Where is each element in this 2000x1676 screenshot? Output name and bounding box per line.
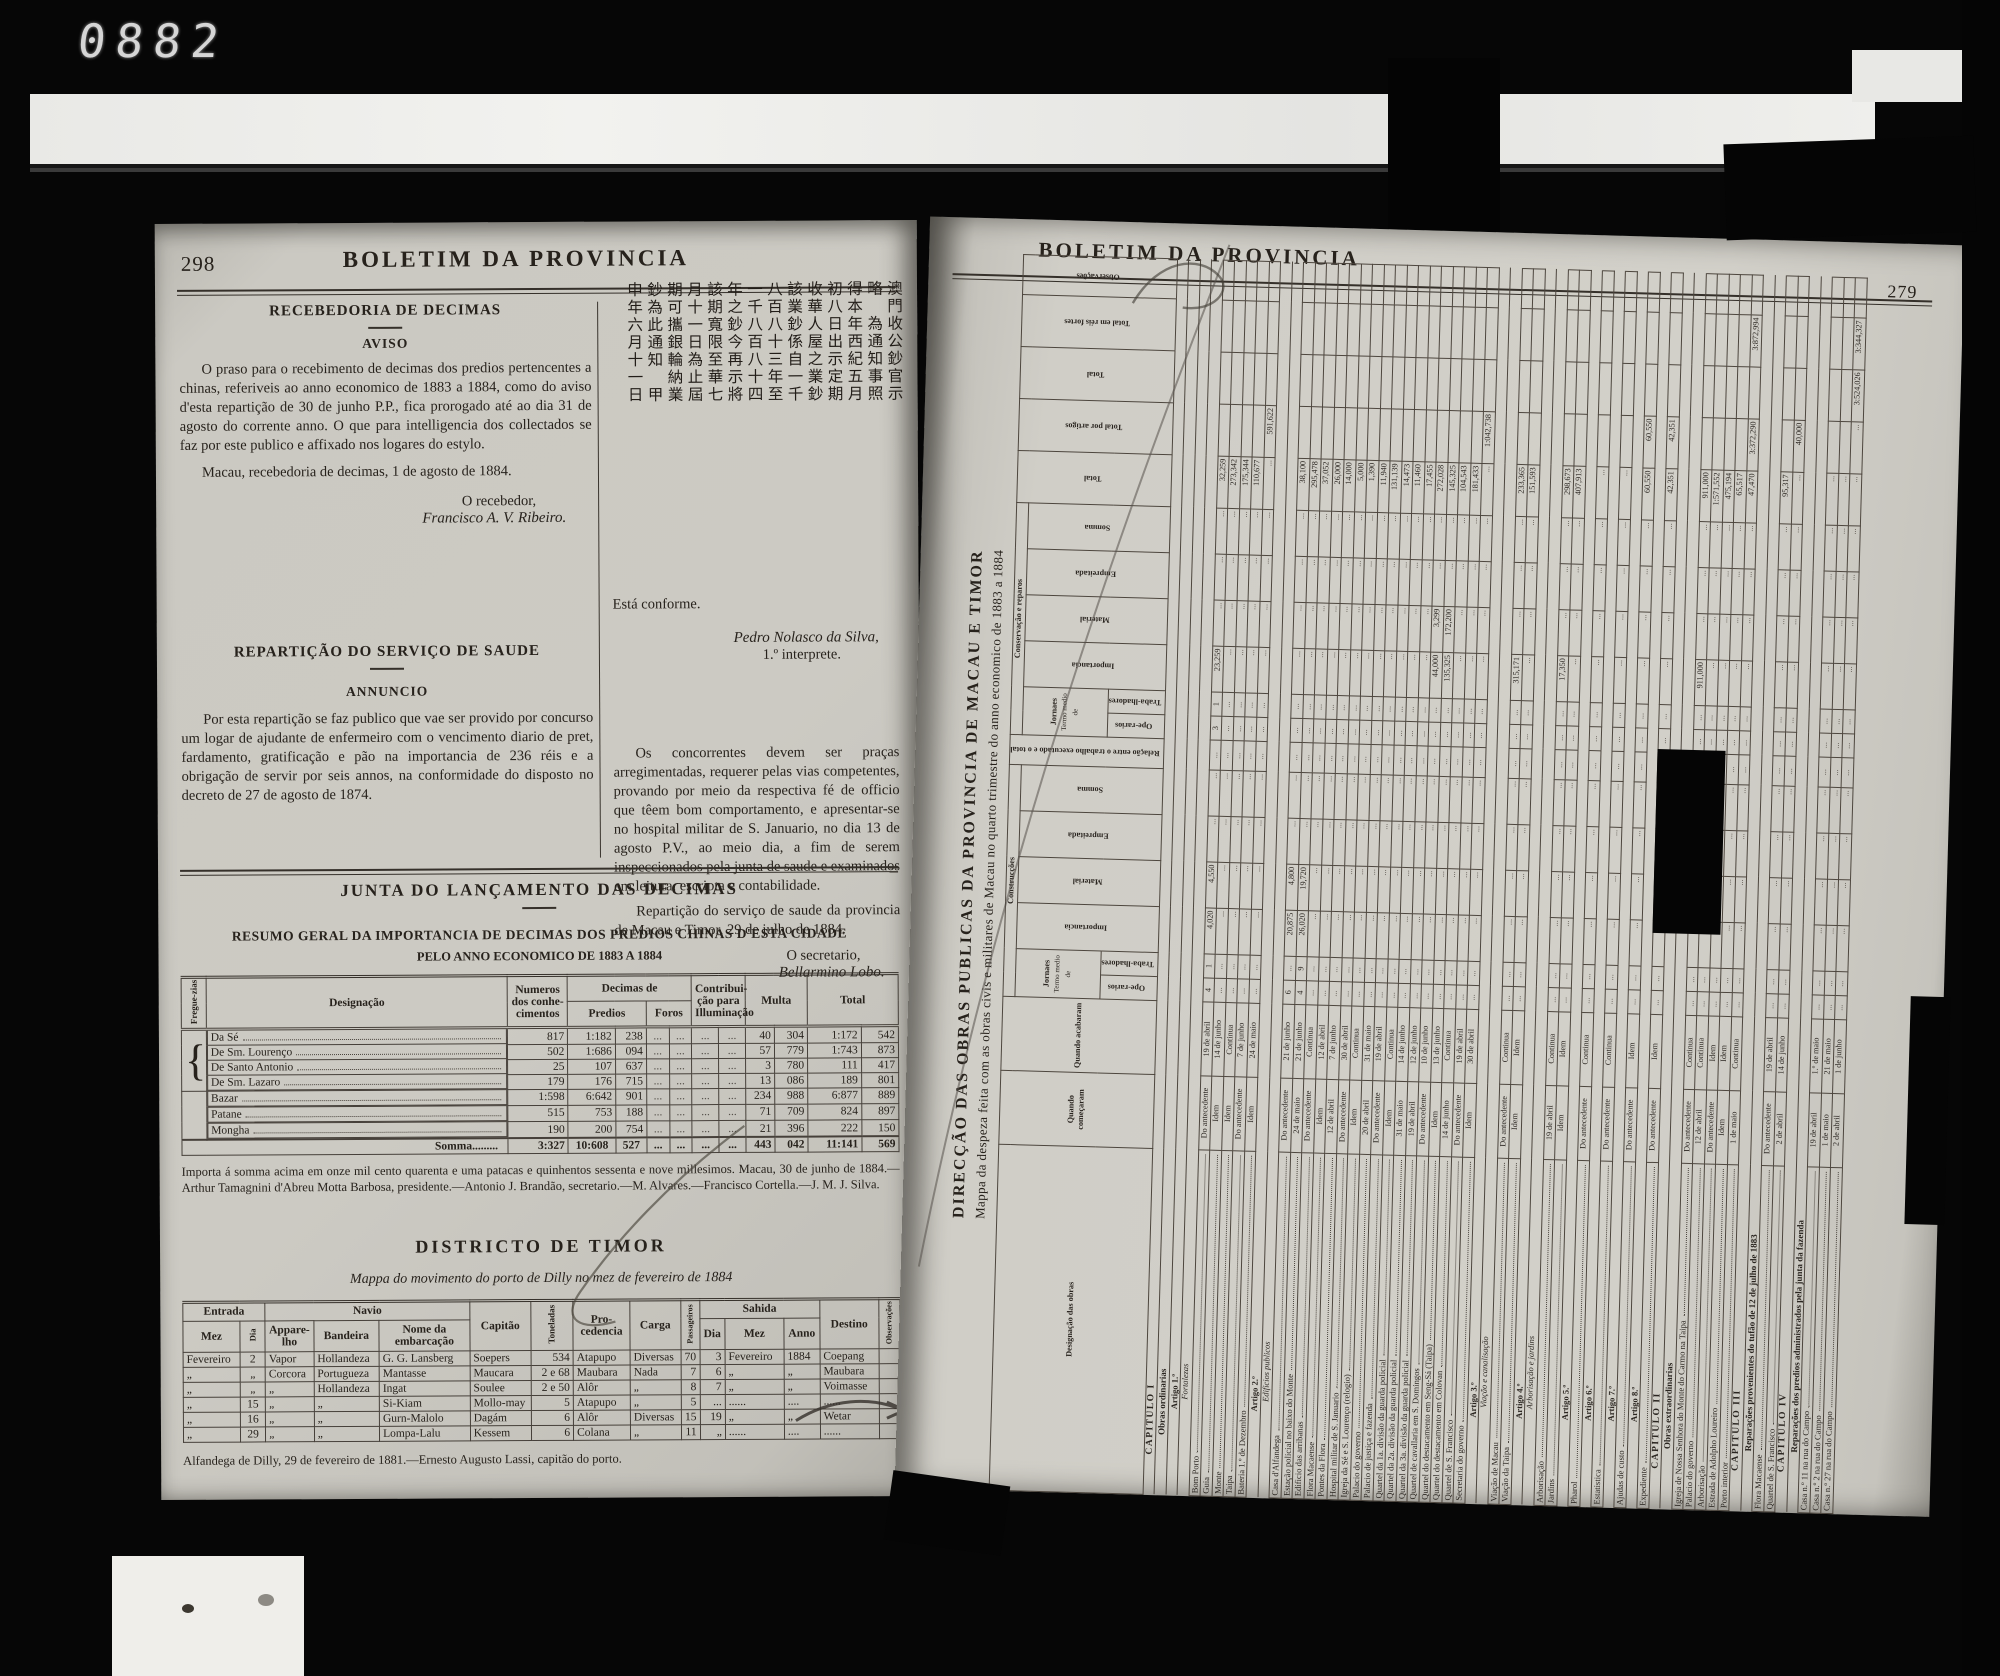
- aviso-dateline: Macau, recebedoria de decimas, 1 de agos…: [180, 462, 592, 483]
- timor-cell: „: [266, 1412, 315, 1427]
- obras-cell: ...: [1234, 693, 1246, 717]
- obras-cell: ...: [1428, 746, 1440, 776]
- obras-cell: ...: [1772, 756, 1784, 786]
- obras-cell: ...: [1301, 743, 1313, 773]
- obras-cell: ...: [1410, 984, 1422, 1008]
- decimas-cell: 901: [616, 1089, 647, 1105]
- obras-cell: ...: [1705, 706, 1717, 730]
- decimas-cell: ...: [719, 1043, 746, 1058]
- timor-cell: „: [784, 1379, 820, 1394]
- rotated-table-wrapper: DIRECÇÃO DAS OBRAS PUBLICAS DA PROVINCIA…: [943, 278, 1881, 1515]
- col-designacao-obras: Designação das obras: [989, 1144, 1152, 1494]
- obras-cell: ...: [1566, 750, 1578, 780]
- timor-cell: „: [183, 1382, 240, 1397]
- obras-cell: ...: [1307, 957, 1319, 981]
- obras-cell: ...: [1318, 957, 1330, 981]
- obras-cell: ...: [1842, 734, 1854, 758]
- obras-cell: ...: [1341, 982, 1353, 1006]
- obras-cell: ...: [1290, 742, 1302, 772]
- col-trabalhadores-1: Traba-lhadores: [1101, 959, 1154, 969]
- decimas-designacao: De Sm. Lourenço: [207, 1044, 508, 1061]
- timor-cell: „: [265, 1382, 314, 1397]
- obras-cell: ...: [1382, 745, 1394, 775]
- obras-cell: ...: [1721, 968, 1733, 992]
- decimas-cell: ...: [647, 1121, 670, 1138]
- obras-cell: ...: [1836, 926, 1849, 972]
- dot-leader: [296, 1054, 501, 1056]
- obras-cell: ...: [1245, 717, 1257, 741]
- timor-cell: ......: [820, 1424, 879, 1439]
- timor-cell: Maubara: [820, 1364, 879, 1379]
- annuncio-heading: ANNUNCIO: [181, 683, 593, 701]
- timor-cell: Mollo-may: [470, 1396, 531, 1411]
- obras-cell: ...: [1245, 693, 1257, 717]
- obras-cell: ...: [1566, 726, 1578, 750]
- obras-cell: ...: [1823, 995, 1835, 1019]
- obras-cell: ...: [1694, 705, 1706, 729]
- timor-cell: „: [314, 1426, 379, 1441]
- col-procedencia: Pro-cedencia: [573, 1300, 630, 1350]
- obras-cell: ...: [1686, 991, 1698, 1015]
- decimas-cell: ...: [692, 1088, 719, 1104]
- obras-cell: ...: [1440, 722, 1452, 746]
- rule: [368, 327, 402, 329]
- obras-cell: ...: [1456, 961, 1468, 985]
- next-frame-sliver: [112, 1556, 304, 1676]
- frame-wedge: [884, 1470, 1011, 1556]
- col-importancia-2: Importancia: [1072, 661, 1115, 671]
- decimas-cell: 189: [808, 1073, 862, 1088]
- obras-cell: ...: [1463, 723, 1475, 747]
- col-empreitada-1: Empreitada: [1068, 831, 1109, 841]
- col-designacao: Designação: [206, 976, 508, 1030]
- obras-cell: ...: [1445, 961, 1457, 985]
- obras-cell: ...: [1508, 748, 1520, 778]
- obras-cell: ...: [1249, 979, 1261, 1003]
- obras-cell: ...: [1433, 984, 1445, 1008]
- timor-cell: 5: [681, 1395, 700, 1410]
- timor-cell: „: [725, 1409, 784, 1424]
- decimas-cell: 3: [746, 1058, 775, 1073]
- decimas-cell: ...: [719, 1058, 746, 1073]
- col-total: Total: [1084, 474, 1102, 483]
- col-entrada: Entrada: [183, 1302, 265, 1321]
- decimas-cell: 6:642: [568, 1089, 616, 1105]
- obras-cell: ...: [1233, 717, 1245, 741]
- col-trabalhadores-2: Traba-lhadores: [1108, 697, 1161, 707]
- obras-cell: ...: [1399, 959, 1411, 983]
- decimas-cell: ...: [647, 1089, 670, 1105]
- decimas-cell: 107: [568, 1059, 616, 1074]
- obras-cell: ...: [1306, 981, 1318, 1005]
- col-multa: Multa: [745, 974, 807, 1027]
- timor-cell: G. G. Lansberg: [379, 1351, 470, 1366]
- obras-cell: ...: [1830, 757, 1842, 787]
- freguezias-brace: {: [181, 1030, 206, 1092]
- obras-cell: ...: [1422, 960, 1434, 984]
- col-toneladas: Toneladas: [546, 1305, 558, 1344]
- timor-cell: Maucara: [470, 1366, 531, 1381]
- obras-cell: ...: [1428, 722, 1440, 746]
- timor-cell: Colana: [574, 1425, 631, 1440]
- timor-cell: „: [183, 1367, 240, 1382]
- obras-cell: 6: [1283, 980, 1295, 1004]
- decimas-cell: 57: [745, 1043, 774, 1058]
- decimas-table: Fregue-zias Designação Numeros dos conhe…: [181, 972, 900, 1156]
- obras-cell: ...: [1318, 981, 1330, 1005]
- obras-cell: ...: [1364, 958, 1376, 982]
- col-decimas: Decimas de: [567, 975, 691, 1002]
- film-edge-blotch: [1904, 996, 1950, 1225]
- decimas-cell: 40: [745, 1027, 774, 1044]
- col-dia: Dia: [247, 1328, 259, 1341]
- obras-cell: 4: [1203, 978, 1215, 1002]
- obras-cell: ...: [1313, 719, 1325, 743]
- col-somma-1: Somma: [1077, 785, 1103, 795]
- timor-cell: Hollandeza: [314, 1381, 379, 1396]
- obras-cell: ...: [1394, 721, 1406, 745]
- timor-cell: Voimasse: [820, 1379, 879, 1394]
- decimas-cell: ...: [692, 1027, 719, 1044]
- timor-cell: „: [240, 1382, 265, 1397]
- obras-cell: ...: [1226, 955, 1238, 979]
- obras-cell: ...: [1341, 958, 1353, 982]
- timor-cell: 6: [700, 1365, 725, 1380]
- obras-cell: ...: [1375, 983, 1387, 1007]
- decimas-cell: ...: [692, 1043, 719, 1058]
- timor-cell: Soulee: [470, 1381, 531, 1396]
- decimas-cell: ...: [692, 1073, 719, 1088]
- decimas-cell: 238: [615, 1027, 646, 1044]
- timor-cell: Atapupo: [573, 1350, 630, 1365]
- decimas-cell: 1:182: [568, 1027, 616, 1044]
- timor-cell: „: [183, 1412, 240, 1427]
- obras-cell: ...: [1509, 724, 1521, 748]
- obras-cell: ...: [1520, 725, 1532, 749]
- obras-cell: ...: [1387, 959, 1399, 983]
- obras-cell: ...: [1556, 702, 1568, 726]
- decimas-designacao: Bazar: [207, 1089, 508, 1107]
- decimas-cell: 754: [616, 1121, 647, 1138]
- decimas-cell: ...: [692, 1104, 719, 1120]
- obras-cell: ...: [1697, 992, 1709, 1016]
- obras-cell: ...: [1636, 704, 1648, 728]
- somma-cell: 10:608: [568, 1138, 616, 1154]
- timor-cell: 19: [700, 1410, 725, 1425]
- decimas-designacao: Patane: [207, 1105, 508, 1123]
- recebedor-name: Francisco A. V. Ribeiro.: [180, 510, 592, 529]
- termo-medio-1: Termo medio de: [1053, 955, 1072, 993]
- timor-cell: 7: [681, 1365, 700, 1380]
- obras-cell: ...: [1583, 964, 1595, 988]
- obras-cell: ...: [1359, 744, 1371, 774]
- obras-cell: ...: [1376, 959, 1388, 983]
- obras-cell: ...: [1215, 954, 1227, 978]
- junta-title: JUNTA DO LANÇAMENTO DAS DECIMAS: [180, 878, 898, 902]
- timor-cell: „: [183, 1397, 240, 1412]
- timor-cell: Hollandeza: [314, 1351, 379, 1366]
- timor-cell: 15: [681, 1410, 700, 1425]
- obras-cell: ...: [1844, 664, 1857, 710]
- timor-cell: „: [725, 1379, 784, 1394]
- obras-cell: ...: [1209, 740, 1221, 770]
- decimas-cell: 086: [775, 1073, 808, 1088]
- obras-cell: ...: [1468, 961, 1480, 985]
- concorrentes-text: Os concorrentes devem ser praças arregim…: [613, 743, 900, 896]
- col-nome: Nome da embarcação: [379, 1320, 470, 1352]
- somma-cell: 3:327: [508, 1138, 568, 1154]
- obras-cell: ...: [1502, 962, 1514, 986]
- col-material-1: Material: [1072, 877, 1102, 887]
- obras-cell: ...: [1383, 697, 1395, 721]
- obras-cell: ...: [1651, 990, 1663, 1014]
- timor-cell: ...: [700, 1395, 725, 1410]
- obras-cell: ...: [1464, 699, 1476, 723]
- obras-cell: ...: [1387, 983, 1399, 1007]
- col-acabaram: Quando acabaram: [1001, 996, 1157, 1074]
- obras-cell: ...: [1820, 709, 1832, 733]
- obras-cell: ...: [1313, 743, 1325, 773]
- obras-cell: ...: [1739, 707, 1751, 731]
- rule: [522, 907, 556, 909]
- obras-cell: ...: [1371, 720, 1383, 744]
- obras-cell: 1: [1203, 954, 1215, 978]
- col-operarios-2: Ope-rarios: [1115, 721, 1153, 731]
- interpreter-name: Pedro Nolasco da Silva,: [613, 629, 899, 647]
- obras-cell: ...: [1249, 955, 1261, 979]
- obras-cell: ...: [1589, 751, 1601, 781]
- timor-cell: Vapor: [265, 1352, 314, 1367]
- brace-glyph: {: [185, 1036, 206, 1085]
- decimas-cell: 200: [568, 1121, 616, 1138]
- decimas-cell: ...: [646, 1027, 669, 1044]
- decimas-cell: 188: [616, 1105, 647, 1121]
- timor-cell: 2 e 68: [531, 1365, 573, 1380]
- decimas-cell: 396: [775, 1120, 808, 1137]
- timor-cell: ....: [784, 1424, 820, 1439]
- timor-cell: „: [725, 1364, 784, 1379]
- obras-cell: ...: [1785, 708, 1797, 732]
- timor-cell: Nada: [630, 1365, 681, 1380]
- timor-row: „29„„Lompa-LaluKessem6Colana„11„........…: [183, 1424, 900, 1443]
- obras-cell: ...: [1773, 732, 1785, 756]
- decimas-cell: 1:598: [508, 1089, 568, 1105]
- microfilm-frame: { "film": { "counter": "0882" }, "left_p…: [0, 0, 2000, 1676]
- somma-cell: ...: [647, 1138, 670, 1154]
- decimas-footnote: Importa á somma acima em onze mil cento …: [182, 1160, 900, 1196]
- col-comecaram: Quando começaram: [999, 1070, 1155, 1148]
- decimas-cell: 715: [615, 1074, 646, 1089]
- obras-cell: ...: [1336, 743, 1348, 773]
- conforme-line: Está conforme.: [613, 594, 899, 614]
- obras-cell: 3:524,026: [1852, 370, 1865, 422]
- obras-cell: ...: [1290, 718, 1302, 742]
- col-dia-sahida: Dia: [699, 1318, 724, 1350]
- resumo-subtitle1: RESUMO GERAL DA IMPORTANCIA DE DECIMAS D…: [180, 925, 898, 945]
- recebedoria-title: RECEBEDORIA DE DECIMAS: [179, 302, 591, 321]
- decimas-cell: 176: [568, 1074, 616, 1089]
- decimas-cell: ...: [646, 1074, 669, 1089]
- decimas-cell: 873: [861, 1042, 898, 1057]
- decimas-cell: 179: [508, 1074, 568, 1089]
- obras-cell: ...: [1382, 721, 1394, 745]
- decimas-cell: 542: [861, 1026, 898, 1043]
- col-relacao: Relação entre o trabalho executado e o t…: [1010, 745, 1160, 758]
- obras-cell: ...: [1831, 733, 1843, 757]
- decimas-cell: 897: [861, 1103, 898, 1119]
- dot-leader: [243, 1039, 502, 1041]
- obras-cell: ...: [1612, 727, 1624, 751]
- col-navio: Navio: [265, 1301, 470, 1321]
- obras-cell: ...: [1238, 955, 1250, 979]
- obras-cell: ...: [1548, 987, 1560, 1011]
- obras-cell: ...: [1222, 692, 1234, 716]
- obras-cell: 1 de junho: [1833, 1020, 1847, 1094]
- timor-cell: „: [314, 1411, 379, 1426]
- timor-cell: 1884: [784, 1349, 820, 1364]
- obras-cell: ...: [1456, 985, 1468, 1009]
- film-notch: [1388, 58, 1500, 234]
- obras-cell: ...: [1232, 741, 1244, 771]
- termo-medio-2: Termo medio de: [1060, 693, 1079, 731]
- decimas-cell: ...: [669, 1044, 692, 1059]
- col-mez: Mez: [183, 1321, 240, 1353]
- obras-cell: 3:344,327: [1853, 318, 1866, 370]
- col-observacoes: Observações: [883, 1301, 895, 1344]
- obras-cell: ...: [1590, 703, 1602, 727]
- obras-cell: ...: [1774, 708, 1786, 732]
- frame-corner-blotch: [1723, 136, 1976, 241]
- obras-cell: ...: [1824, 971, 1836, 995]
- col-somma-2: Somma: [1084, 523, 1110, 533]
- dot-leader: [254, 1132, 502, 1134]
- obras-cell: ...: [1237, 979, 1249, 1003]
- timor-cell: „: [700, 1425, 725, 1440]
- obras-cell: ...: [1405, 721, 1417, 745]
- obras-cell: ...: [1284, 956, 1296, 980]
- obras-cell: ...: [1847, 526, 1860, 572]
- obras-cell: ...: [1612, 751, 1624, 781]
- obras-cell: ...: [1406, 697, 1418, 721]
- timor-cell: 6: [531, 1425, 573, 1440]
- obras-cell: ...: [1291, 694, 1303, 718]
- timor-cell: 2 e 50: [531, 1380, 573, 1395]
- freguezias-empty: [182, 1091, 207, 1140]
- col-capitao: Capitão: [470, 1301, 531, 1351]
- decimas-cell: ...: [669, 1121, 692, 1138]
- right-column: 澳門收公鈔官示 略 為通知事照 得本年西紀五月 初八日出示定期 收華人屋之業鈔 …: [611, 280, 901, 982]
- frame-edge-right: [1962, 0, 2000, 1676]
- group-jornaes-2: JornaesTermo medio de: [1022, 687, 1109, 737]
- aviso-heading: AVISO: [179, 335, 591, 353]
- timor-cell: „: [183, 1427, 240, 1442]
- obras-cell: ...: [1739, 731, 1751, 755]
- film-frame-counter: 0882: [75, 14, 231, 68]
- obras-cell: ...: [1839, 834, 1852, 880]
- decimas-cell: 780: [774, 1058, 807, 1073]
- scrap-speck: [258, 1594, 274, 1606]
- obras-cell: ...: [1767, 970, 1779, 994]
- col-empreitada-2: Empreitada: [1075, 569, 1116, 579]
- timor-cell: Fevereiro: [183, 1352, 240, 1367]
- obras-cell: ...: [1303, 695, 1315, 719]
- timor-cell: Kessem: [470, 1426, 531, 1441]
- decimas-cell: 709: [775, 1104, 808, 1120]
- decimas-cell: ...: [692, 1058, 719, 1073]
- col-carga: Carga: [630, 1300, 681, 1350]
- timor-footnote: Alfandega de Dilly, 29 de fevereiro de 1…: [183, 1449, 901, 1469]
- obras-cell: ...: [1462, 747, 1474, 777]
- timor-cell: 6: [531, 1410, 573, 1425]
- decimas-cell: 824: [808, 1104, 862, 1120]
- obras-cell: ...: [1843, 710, 1855, 734]
- obras-cell: ...: [1819, 733, 1831, 757]
- obras-cell: ...: [1582, 988, 1594, 1012]
- timor-cell: ......: [725, 1424, 784, 1439]
- timor-subtitle: Mappa do movimento do porto de Dilly no …: [182, 1269, 900, 1289]
- obras-cell: ...: [1395, 697, 1407, 721]
- obras-cell: ...: [1613, 703, 1625, 727]
- obras-cell: ...: [1502, 986, 1514, 1010]
- obras-cell: ...: [1846, 572, 1859, 618]
- somma-cell: ...: [719, 1137, 746, 1153]
- obras-cell: ...: [1256, 717, 1268, 741]
- decimas-cell: ...: [719, 1104, 746, 1120]
- obras-cell: ...: [1521, 701, 1533, 725]
- obras-cell: ...: [1738, 755, 1750, 785]
- obras-cell: ...: [1554, 750, 1566, 780]
- obras-cell: ...: [1325, 719, 1337, 743]
- timor-cell: „: [266, 1427, 315, 1442]
- obras-cell: ...: [1628, 990, 1640, 1014]
- decimas-cell: 222: [808, 1120, 862, 1137]
- obras-cell: ...: [1370, 744, 1382, 774]
- timor-cell: Gurn-Malolo: [379, 1411, 470, 1426]
- timor-cell: „: [630, 1425, 681, 1440]
- decimas-cell: 801: [861, 1072, 898, 1087]
- obras-cell: ...: [1474, 747, 1486, 777]
- timor-cell: 2: [240, 1352, 265, 1367]
- obras-cell: ...: [1732, 969, 1744, 993]
- somma-cell: 569: [862, 1136, 899, 1152]
- timor-cell: Atapupo: [573, 1395, 630, 1410]
- obras-cell: ...: [1353, 958, 1365, 982]
- film-edge-strip: [30, 94, 1875, 164]
- rule: [370, 668, 404, 670]
- annuncio-text: Por esta repartição se faz publico que v…: [181, 709, 593, 806]
- timor-cell: „: [784, 1409, 820, 1424]
- saude-title: REPARTIÇÃO DO SERVIÇO DE SAUDE: [181, 643, 593, 662]
- decimas-cell: 889: [861, 1087, 898, 1103]
- timor-cell: 7: [700, 1380, 725, 1395]
- obras-cell: ...: [1337, 696, 1349, 720]
- obras-cell: ...: [1514, 963, 1526, 987]
- somma-cell: 443: [746, 1137, 775, 1153]
- timor-cell: Diversas: [630, 1350, 681, 1365]
- obras-cell: ...: [1330, 957, 1342, 981]
- obras-cell: ...: [1841, 758, 1853, 788]
- col-operarios-1: Ope-rarios: [1108, 983, 1146, 993]
- decimas-cell: 753: [568, 1105, 616, 1121]
- timor-cell: ....: [784, 1394, 820, 1409]
- decimas-cell: 71: [746, 1104, 775, 1120]
- obras-cell: 1: [1211, 692, 1223, 716]
- decimas-cell: ...: [669, 1105, 692, 1121]
- obras-cell: ...: [1686, 967, 1698, 991]
- obras-cell: ...: [1589, 727, 1601, 751]
- aviso-text: O praso para o recebimento de decimas do…: [179, 359, 591, 456]
- column-divider: [597, 302, 601, 858]
